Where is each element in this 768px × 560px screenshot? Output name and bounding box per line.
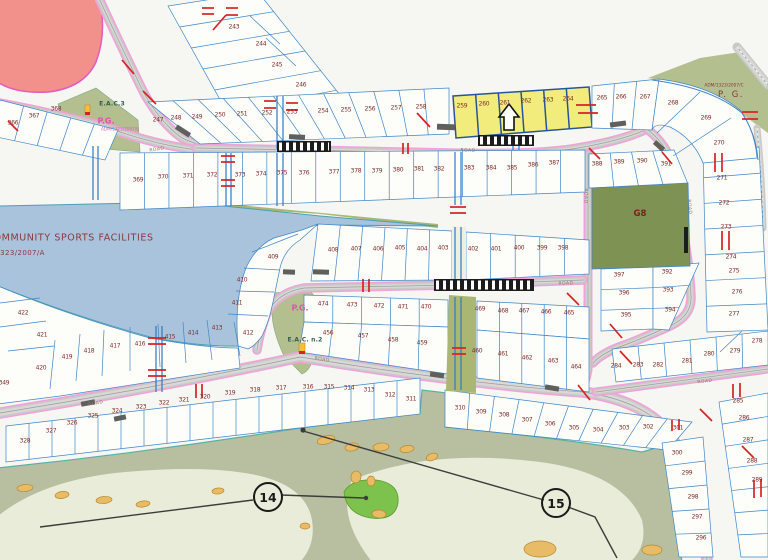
lot-label-322: 322 bbox=[159, 400, 170, 407]
lot-label-462: 462 bbox=[522, 355, 533, 362]
lot-label-270: 270 bbox=[714, 140, 725, 147]
road-label: ROAD bbox=[88, 400, 104, 408]
lot-label-249: 249 bbox=[192, 114, 203, 121]
lot-label-420: 420 bbox=[36, 365, 47, 372]
lot-label-246: 246 bbox=[296, 82, 307, 89]
road-label: ROAD bbox=[314, 356, 330, 363]
lot-label-311: 311 bbox=[406, 396, 417, 403]
lot-label-398: 398 bbox=[558, 245, 569, 252]
lot-label-416: 416 bbox=[135, 341, 146, 348]
lot-label-250: 250 bbox=[215, 112, 226, 119]
lot-label-288: 288 bbox=[747, 458, 758, 465]
lot-label-406: 406 bbox=[373, 246, 384, 253]
lot-label-371: 371 bbox=[183, 173, 194, 180]
lot-label-418: 418 bbox=[84, 348, 95, 355]
golf-hole-marker-15: 15 bbox=[541, 488, 571, 518]
golf-hole-marker-14: 14 bbox=[253, 482, 283, 512]
lot-label-405: 405 bbox=[395, 245, 406, 252]
lot-label-248: 248 bbox=[171, 115, 182, 122]
lot-label-259: 259 bbox=[457, 103, 468, 110]
lot-label-466: 466 bbox=[541, 309, 552, 316]
lot-label-395: 395 bbox=[621, 312, 632, 319]
lot-label-376: 376 bbox=[299, 170, 310, 177]
lot-label-251: 251 bbox=[237, 111, 248, 118]
lot-label-298: 298 bbox=[688, 494, 699, 501]
lot-label-473: 473 bbox=[347, 302, 358, 309]
lot-label-254: 254 bbox=[318, 108, 329, 115]
lot-label-309: 309 bbox=[476, 409, 487, 416]
lot-label-373: 373 bbox=[235, 172, 246, 179]
area-label: P.G. bbox=[97, 117, 114, 126]
lot-label-386: 386 bbox=[528, 162, 539, 169]
lot-label-387: 387 bbox=[549, 160, 560, 167]
lot-label-315: 315 bbox=[324, 384, 335, 391]
area-label: E.A.C. n.2 bbox=[288, 337, 323, 344]
lot-label-411: 411 bbox=[232, 300, 243, 307]
area-label: P.G. bbox=[291, 304, 308, 313]
area-label: ADM/1323/2007/A bbox=[0, 249, 45, 257]
lot-label-380: 380 bbox=[393, 167, 404, 174]
lot-label-253: 253 bbox=[287, 109, 298, 116]
lot-label-457: 457 bbox=[358, 333, 369, 340]
lot-label-374: 374 bbox=[256, 171, 267, 178]
lot-label-381: 381 bbox=[414, 166, 425, 173]
lot-label-286: 286 bbox=[739, 415, 750, 422]
lot-label-276: 276 bbox=[732, 289, 743, 296]
area-label: P. G. bbox=[718, 90, 744, 100]
lot-label-403: 403 bbox=[438, 245, 449, 252]
lot-label-278: 278 bbox=[752, 338, 763, 345]
lot-label-296: 296 bbox=[696, 535, 707, 542]
lot-label-325: 325 bbox=[88, 413, 99, 420]
lot-label-318: 318 bbox=[250, 387, 261, 394]
lot-label-262: 262 bbox=[521, 98, 532, 105]
lot-label-415: 415 bbox=[165, 334, 176, 341]
lot-label-399: 399 bbox=[537, 245, 548, 252]
lot-label-307: 307 bbox=[522, 417, 533, 424]
lot-label-245: 245 bbox=[272, 62, 283, 69]
lot-label-397: 397 bbox=[614, 272, 625, 279]
lot-label-321: 321 bbox=[179, 397, 190, 404]
lot-label-417: 417 bbox=[110, 343, 121, 350]
lot-label-313: 313 bbox=[364, 387, 375, 394]
lot-label-279: 279 bbox=[730, 348, 741, 355]
lot-label-277: 277 bbox=[729, 311, 740, 318]
lot-label-388: 388 bbox=[592, 161, 603, 168]
lot-label-372: 372 bbox=[207, 172, 218, 179]
lot-label-243: 243 bbox=[229, 24, 240, 31]
road-label: ROAD bbox=[697, 379, 713, 386]
lot-label-468: 468 bbox=[498, 308, 509, 315]
lot-label-379: 379 bbox=[372, 168, 383, 175]
lot-label-269: 269 bbox=[701, 115, 712, 122]
lot-label-317: 317 bbox=[276, 385, 287, 392]
lot-label-328: 328 bbox=[20, 438, 31, 445]
lot-label-275: 275 bbox=[729, 268, 740, 275]
lot-label-396: 396 bbox=[619, 290, 630, 297]
lot-label-305: 305 bbox=[569, 425, 580, 432]
lot-label-391: 391 bbox=[661, 161, 672, 168]
lot-label-463: 463 bbox=[548, 358, 559, 365]
lot-label-319: 319 bbox=[225, 390, 236, 397]
lot-label-312: 312 bbox=[385, 392, 396, 399]
lot-label-285: 285 bbox=[733, 398, 744, 405]
lot-label-244: 244 bbox=[256, 41, 267, 48]
lot-label-255: 255 bbox=[341, 107, 352, 114]
lot-label-258: 258 bbox=[416, 104, 427, 111]
area-label: G8 bbox=[634, 209, 647, 219]
lot-label-389: 389 bbox=[614, 159, 625, 166]
lot-label-289: 289 bbox=[752, 477, 763, 484]
lot-label-467: 467 bbox=[519, 308, 530, 315]
lot-label-264: 264 bbox=[563, 96, 574, 103]
lot-label-260: 260 bbox=[479, 101, 490, 108]
lot-label-469: 469 bbox=[475, 306, 486, 313]
lot-label-301: 301 bbox=[673, 425, 684, 432]
lot-label-272: 272 bbox=[719, 200, 730, 207]
lot-label-456: 456 bbox=[323, 330, 334, 337]
lot-label-377: 377 bbox=[329, 169, 340, 176]
lot-label-422: 422 bbox=[18, 310, 29, 317]
lot-label-465: 465 bbox=[564, 310, 575, 317]
lot-label-297: 297 bbox=[692, 514, 703, 521]
lot-label-464: 464 bbox=[571, 364, 582, 371]
lot-label-314: 314 bbox=[344, 385, 355, 392]
lot-label-474: 474 bbox=[318, 301, 329, 308]
lot-label-300: 300 bbox=[672, 450, 683, 457]
lot-label-282: 282 bbox=[653, 362, 664, 369]
lot-label-304: 304 bbox=[593, 427, 604, 434]
lot-label-392: 392 bbox=[662, 269, 673, 276]
lot-label-390: 390 bbox=[637, 158, 648, 165]
lot-label-287: 287 bbox=[743, 437, 754, 444]
lot-label-266: 266 bbox=[616, 94, 627, 101]
lot-label-303: 303 bbox=[619, 425, 630, 432]
road-label: ROAD bbox=[460, 148, 475, 154]
lot-label-382: 382 bbox=[434, 166, 445, 173]
lot-label-461: 461 bbox=[498, 351, 509, 358]
lot-label-384: 384 bbox=[486, 165, 497, 172]
lot-label-256: 256 bbox=[365, 106, 376, 113]
lot-label-323: 323 bbox=[136, 404, 147, 411]
road-label: ROAD bbox=[149, 146, 165, 153]
area-label: ADM/1323/2007/B bbox=[101, 127, 139, 132]
lot-label-409: 409 bbox=[268, 254, 279, 261]
subdivision-map: 2432442452462472482492502512522532542552… bbox=[0, 0, 768, 560]
map-labels-layer: 2432442452462472482492502512522532542552… bbox=[0, 0, 768, 560]
lot-label-414: 414 bbox=[188, 330, 199, 337]
area-label: COMMUNITY SPORTS FACILITIES bbox=[0, 233, 154, 244]
lot-label-407: 407 bbox=[351, 246, 362, 253]
lot-label-472: 472 bbox=[374, 303, 385, 310]
lot-label-383: 383 bbox=[464, 165, 475, 172]
lot-label-274: 274 bbox=[726, 254, 737, 261]
lot-label-408: 408 bbox=[328, 247, 339, 254]
lot-label-273: 273 bbox=[721, 224, 732, 231]
lot-label-283: 283 bbox=[633, 362, 644, 369]
lot-label-458: 458 bbox=[388, 337, 399, 344]
lot-label-402: 402 bbox=[468, 246, 479, 253]
lot-label-419: 419 bbox=[62, 354, 73, 361]
lot-label-412: 412 bbox=[243, 330, 254, 337]
lot-label-299: 299 bbox=[682, 470, 693, 477]
lot-label-252: 252 bbox=[262, 110, 273, 117]
lot-label-413: 413 bbox=[212, 325, 223, 332]
lot-label-308: 308 bbox=[499, 412, 510, 419]
lot-label-460: 460 bbox=[472, 348, 483, 355]
lot-label-265: 265 bbox=[597, 95, 608, 102]
lot-label-385: 385 bbox=[507, 165, 518, 172]
lot-label-378: 378 bbox=[351, 168, 362, 175]
lot-label-306: 306 bbox=[545, 421, 556, 428]
road-label: ROAD bbox=[558, 281, 573, 287]
lot-label-280: 280 bbox=[704, 351, 715, 358]
lot-label-326: 326 bbox=[67, 420, 78, 427]
lot-label-368: 368 bbox=[51, 106, 62, 113]
lot-label-370: 370 bbox=[158, 174, 169, 181]
lot-label-394: 394 bbox=[665, 307, 676, 314]
lot-label-261: 261 bbox=[500, 100, 511, 107]
lot-label-375: 375 bbox=[277, 170, 288, 177]
area-label: ADM/1323/2007/C bbox=[704, 84, 743, 89]
lot-label-470: 470 bbox=[421, 304, 432, 311]
lot-label-316: 316 bbox=[303, 384, 314, 391]
lot-label-302: 302 bbox=[643, 424, 654, 431]
lot-label-281: 281 bbox=[682, 358, 693, 365]
road-label: ROAD bbox=[686, 199, 693, 215]
road-label: ROAD bbox=[583, 188, 588, 203]
lot-label-366: 366 bbox=[8, 120, 19, 127]
lot-label-404: 404 bbox=[417, 246, 428, 253]
lot-label-257: 257 bbox=[391, 105, 402, 112]
lot-label-267: 267 bbox=[640, 94, 651, 101]
lot-label-324: 324 bbox=[112, 408, 123, 415]
lot-label-247: 247 bbox=[153, 117, 164, 124]
lot-label-401: 401 bbox=[491, 246, 502, 253]
lot-label-284: 284 bbox=[611, 363, 622, 370]
lot-label-327: 327 bbox=[46, 428, 57, 435]
lot-label-369: 369 bbox=[133, 177, 144, 184]
lot-label-271: 271 bbox=[717, 175, 728, 182]
lot-label-410: 410 bbox=[237, 277, 248, 284]
lot-label-471: 471 bbox=[398, 304, 409, 311]
lot-label-459: 459 bbox=[417, 340, 428, 347]
area-label: E.A.C.3 bbox=[99, 101, 125, 108]
lot-label-400: 400 bbox=[514, 245, 525, 252]
lot-label-421: 421 bbox=[37, 332, 48, 339]
lot-label-263: 263 bbox=[543, 97, 554, 104]
lot-label-349: 349 bbox=[0, 380, 9, 387]
lot-label-393: 393 bbox=[663, 287, 674, 294]
lot-label-268: 268 bbox=[668, 100, 679, 107]
lot-label-310: 310 bbox=[455, 405, 466, 412]
lot-label-367: 367 bbox=[29, 113, 40, 120]
lot-label-320: 320 bbox=[200, 394, 211, 401]
